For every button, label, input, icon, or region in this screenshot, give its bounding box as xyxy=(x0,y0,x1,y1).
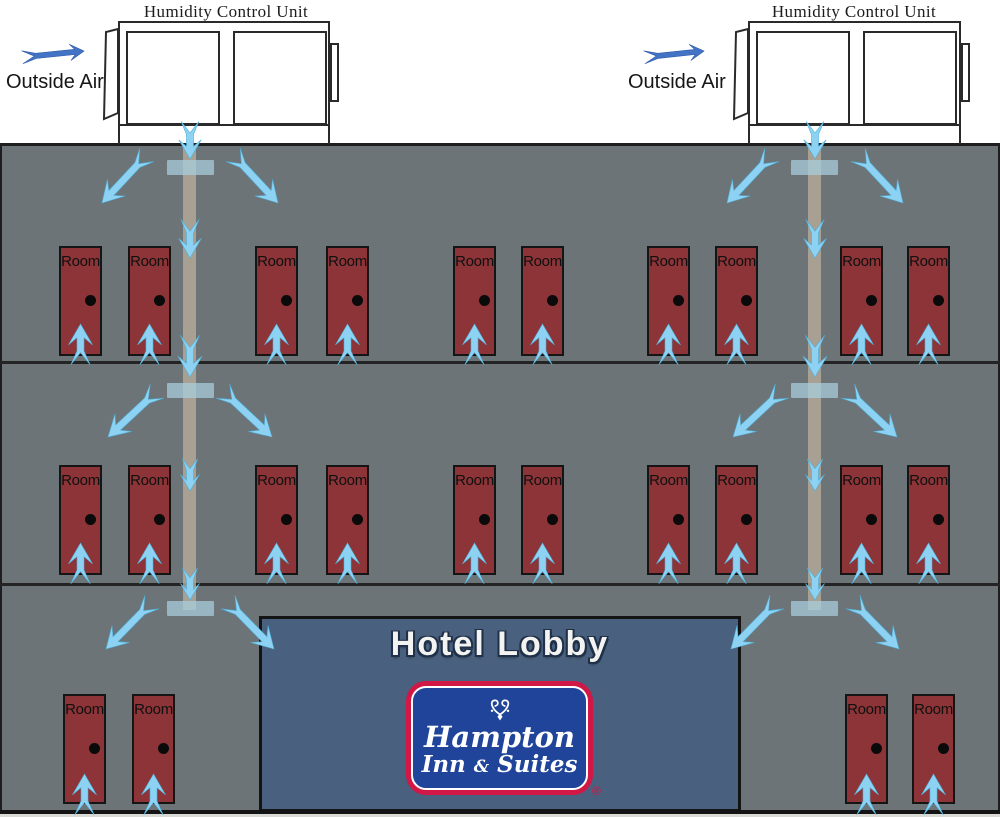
room-door: Room xyxy=(715,465,758,575)
room-label: Room xyxy=(842,253,881,270)
room-door: Room xyxy=(647,465,690,575)
room-label: Room xyxy=(257,472,296,489)
room-door: Room xyxy=(326,246,369,356)
room-door: Room xyxy=(521,465,564,575)
room-door: Room xyxy=(326,465,369,575)
door-knob-icon xyxy=(352,514,363,525)
door-knob-icon xyxy=(154,514,165,525)
room-door: Room xyxy=(521,246,564,356)
room-label: Room xyxy=(61,253,100,270)
room-door: Room xyxy=(912,694,955,804)
room-label: Room xyxy=(717,253,756,270)
door-knob-icon xyxy=(479,295,490,306)
door-knob-icon xyxy=(89,743,100,754)
door-knob-icon xyxy=(866,514,877,525)
room-door: Room xyxy=(845,694,888,804)
room-label: Room xyxy=(717,472,756,489)
room-label: Room xyxy=(65,701,104,718)
room-label: Room xyxy=(909,253,948,270)
room-label: Room xyxy=(909,472,948,489)
room-door: Room xyxy=(647,246,690,356)
door-knob-icon xyxy=(933,514,944,525)
room-door: Room xyxy=(840,465,883,575)
door-knob-icon xyxy=(85,295,96,306)
door-knob-icon xyxy=(352,295,363,306)
door-knob-icon xyxy=(547,295,558,306)
room-door: Room xyxy=(128,465,171,575)
door-knob-icon xyxy=(158,743,169,754)
door-knob-icon xyxy=(866,295,877,306)
room-label: Room xyxy=(649,472,688,489)
room-label: Room xyxy=(914,701,953,718)
room-label: Room xyxy=(328,472,367,489)
door-knob-icon xyxy=(281,514,292,525)
room-door: Room xyxy=(907,465,950,575)
room-door: Room xyxy=(59,465,102,575)
doors-layer: RoomRoomRoomRoomRoomRoomRoomRoomRoomRoom… xyxy=(0,0,1000,817)
door-knob-icon xyxy=(741,514,752,525)
room-door: Room xyxy=(63,694,106,804)
room-label: Room xyxy=(842,472,881,489)
room-door: Room xyxy=(132,694,175,804)
hvac-diagram: Humidity Control Unit Outside Air Humidi… xyxy=(0,0,1000,817)
room-label: Room xyxy=(847,701,886,718)
room-label: Room xyxy=(523,253,562,270)
room-label: Room xyxy=(649,253,688,270)
room-door: Room xyxy=(453,246,496,356)
door-knob-icon xyxy=(281,295,292,306)
room-label: Room xyxy=(455,253,494,270)
room-label: Room xyxy=(455,472,494,489)
door-knob-icon xyxy=(85,514,96,525)
room-door: Room xyxy=(128,246,171,356)
room-door: Room xyxy=(59,246,102,356)
room-door: Room xyxy=(840,246,883,356)
room-label: Room xyxy=(130,472,169,489)
room-label: Room xyxy=(61,472,100,489)
room-label: Room xyxy=(523,472,562,489)
door-knob-icon xyxy=(938,743,949,754)
door-knob-icon xyxy=(547,514,558,525)
door-knob-icon xyxy=(871,743,882,754)
door-knob-icon xyxy=(154,295,165,306)
room-door: Room xyxy=(255,246,298,356)
door-knob-icon xyxy=(479,514,490,525)
room-door: Room xyxy=(715,246,758,356)
room-label: Room xyxy=(257,253,296,270)
door-knob-icon xyxy=(741,295,752,306)
door-knob-icon xyxy=(673,514,684,525)
door-knob-icon xyxy=(933,295,944,306)
room-label: Room xyxy=(130,253,169,270)
room-door: Room xyxy=(453,465,496,575)
room-label: Room xyxy=(328,253,367,270)
room-label: Room xyxy=(134,701,173,718)
room-door: Room xyxy=(255,465,298,575)
door-knob-icon xyxy=(673,295,684,306)
room-door: Room xyxy=(907,246,950,356)
